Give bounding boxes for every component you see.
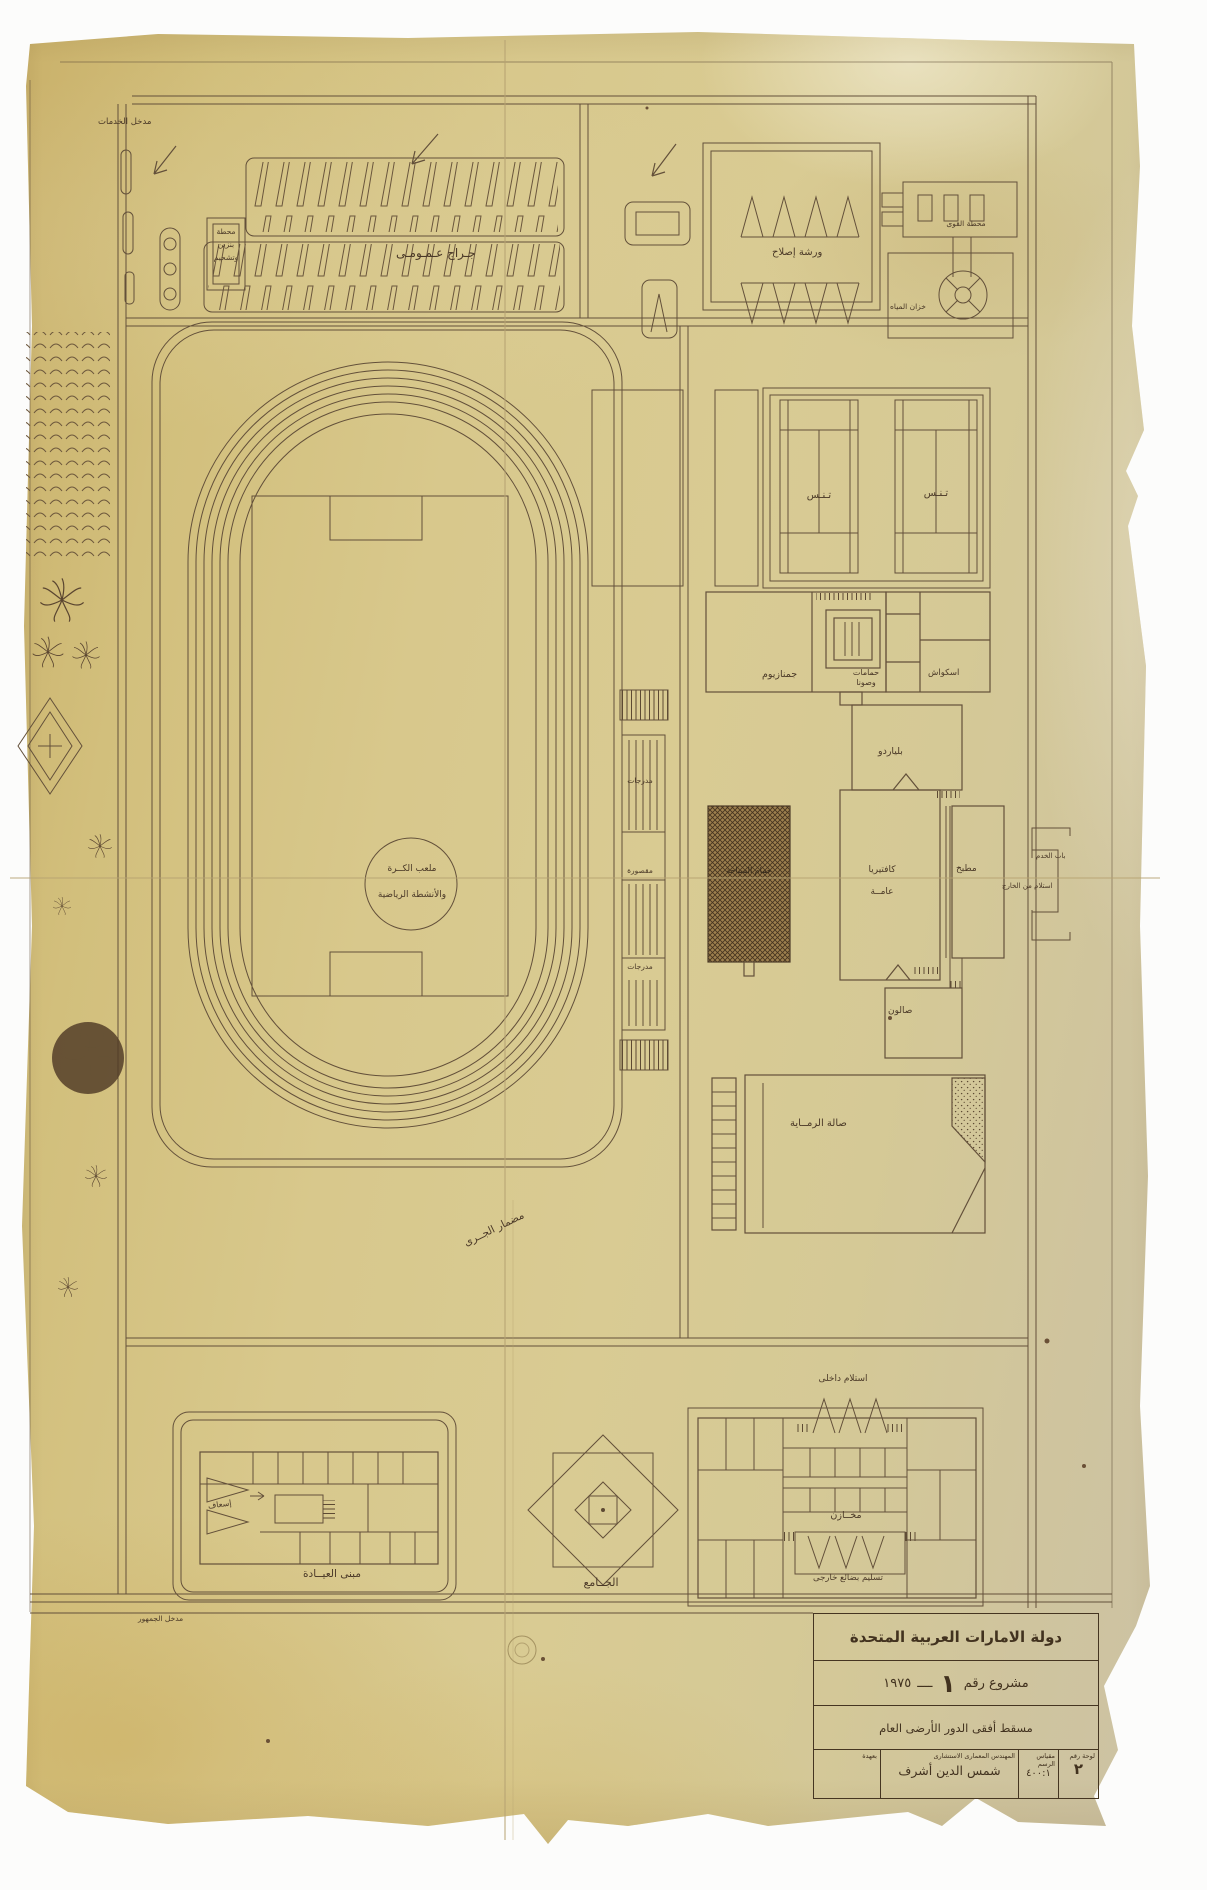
custody-label: بعهدة (814, 1750, 880, 1760)
power-station-water-tank (882, 182, 1017, 338)
label-service-entrance: مدخل الخدمات (98, 117, 151, 128)
label-swimming-pool: حمام السباحة (708, 866, 790, 876)
mosque-octagon (528, 1435, 678, 1585)
label-public-garage: جـراج عـمـومـى (396, 246, 476, 261)
label-repair-workshop: ورشة إصلاح (772, 247, 822, 260)
large-tree (52, 1022, 124, 1094)
label-clinic-building: مبنى العيــادة (272, 1568, 392, 1581)
label-tennis-1: تـنـس (799, 490, 839, 503)
sheet-value: ٢ (1059, 1760, 1098, 1778)
label-stands-bottom: مدرجات (616, 962, 664, 971)
clubhouse-buildings (706, 592, 1070, 1058)
label-gas-station: محطة بنزين وتشحيم (207, 226, 245, 264)
label-service-gate: باب الخدم (1036, 852, 1066, 861)
label-shooting-hall: صالة الرمــاية (790, 1118, 847, 1131)
label-public-entrance: مدخل الجمهور (138, 1614, 183, 1623)
project-separator: ــــ (917, 1676, 932, 1691)
title-block-project-line: مشروع رقم ١ ــــ ١٩٧٥ (814, 1660, 1098, 1705)
grandstand (620, 690, 668, 1070)
label-receiving-outside: استلام من الخارج (1002, 882, 1053, 891)
label-cafeteria: كافتيريا عامــة (850, 860, 914, 903)
scale-label: مقياس الرسم (1019, 1750, 1058, 1768)
stadium-track-and-pitch (152, 322, 622, 1167)
scanned-site-plan-sheet: مدخل الخدمات محطة بنزين وتشحيم جـراج عـم… (0, 0, 1207, 1890)
label-gymnasium: جمنازيوم (762, 669, 797, 681)
label-baths-sauna: حمامات وصونا (840, 668, 892, 688)
label-royal-box: مقصورة (616, 866, 664, 875)
label-warehouses: مخــازن (798, 1510, 894, 1522)
label-power-station: محطة القوى (936, 219, 996, 228)
label-stands-top: مدرجات (616, 776, 664, 785)
scale-value: ٤٠٠:١ (1019, 1768, 1058, 1779)
label-tennis-2: تـنـس (916, 488, 956, 501)
label-water-tank: خزان المياه (890, 302, 926, 311)
project-year: ١٩٧٥ (883, 1676, 917, 1691)
scale-cell: مقياس الرسم ٤٠٠:١ (1018, 1750, 1058, 1798)
label-external-delivery: تسليم بضائع خارجى (798, 1573, 898, 1584)
title-block: دولة الامارات العربية المتحدة مشروع رقم … (813, 1613, 1099, 1799)
label-receiving-internal: استلام داخلى (800, 1374, 886, 1385)
title-block-drawing-title: مسقط أفقى الدور الأرضى العام (814, 1705, 1098, 1749)
title-block-country: دولة الامارات العربية المتحدة (814, 1614, 1098, 1660)
shooting-range-building (712, 1075, 985, 1233)
label-salon: صالون (888, 1006, 912, 1017)
architect-title: المهندس المعمارى الاستشارى (881, 1750, 1018, 1760)
project-number: ١ (932, 1669, 963, 1698)
label-billiards: بلياردو (878, 746, 903, 758)
label-kitchen: مطبخ (956, 864, 977, 875)
sheet-number-cell: لوحة رقم ٢ (1058, 1750, 1098, 1798)
garden-landscaping (18, 332, 124, 1297)
custody-cell: بعهدة (814, 1750, 880, 1798)
label-mosque: الجــامع (566, 1576, 636, 1590)
sheet-label: لوحة رقم (1059, 1750, 1098, 1760)
architect-name: شمس الدين أشرف (881, 1760, 1018, 1778)
title-block-bottom-row: لوحة رقم ٢ مقياس الرسم ٤٠٠:١ المهندس الم… (814, 1749, 1098, 1798)
stains-and-creases (10, 40, 1160, 1840)
site-plan-linework (0, 0, 1207, 1890)
repair-workshop-building (703, 143, 880, 323)
label-pitch-circle: ملعب الكــرة والأنشطة الرياضية (363, 856, 461, 908)
label-squash: اسكواش (928, 668, 959, 679)
architect-cell: المهندس المعمارى الاستشارى شمس الدين أشر… (880, 1750, 1018, 1798)
project-prefix: مشروع رقم (964, 1676, 1029, 1691)
